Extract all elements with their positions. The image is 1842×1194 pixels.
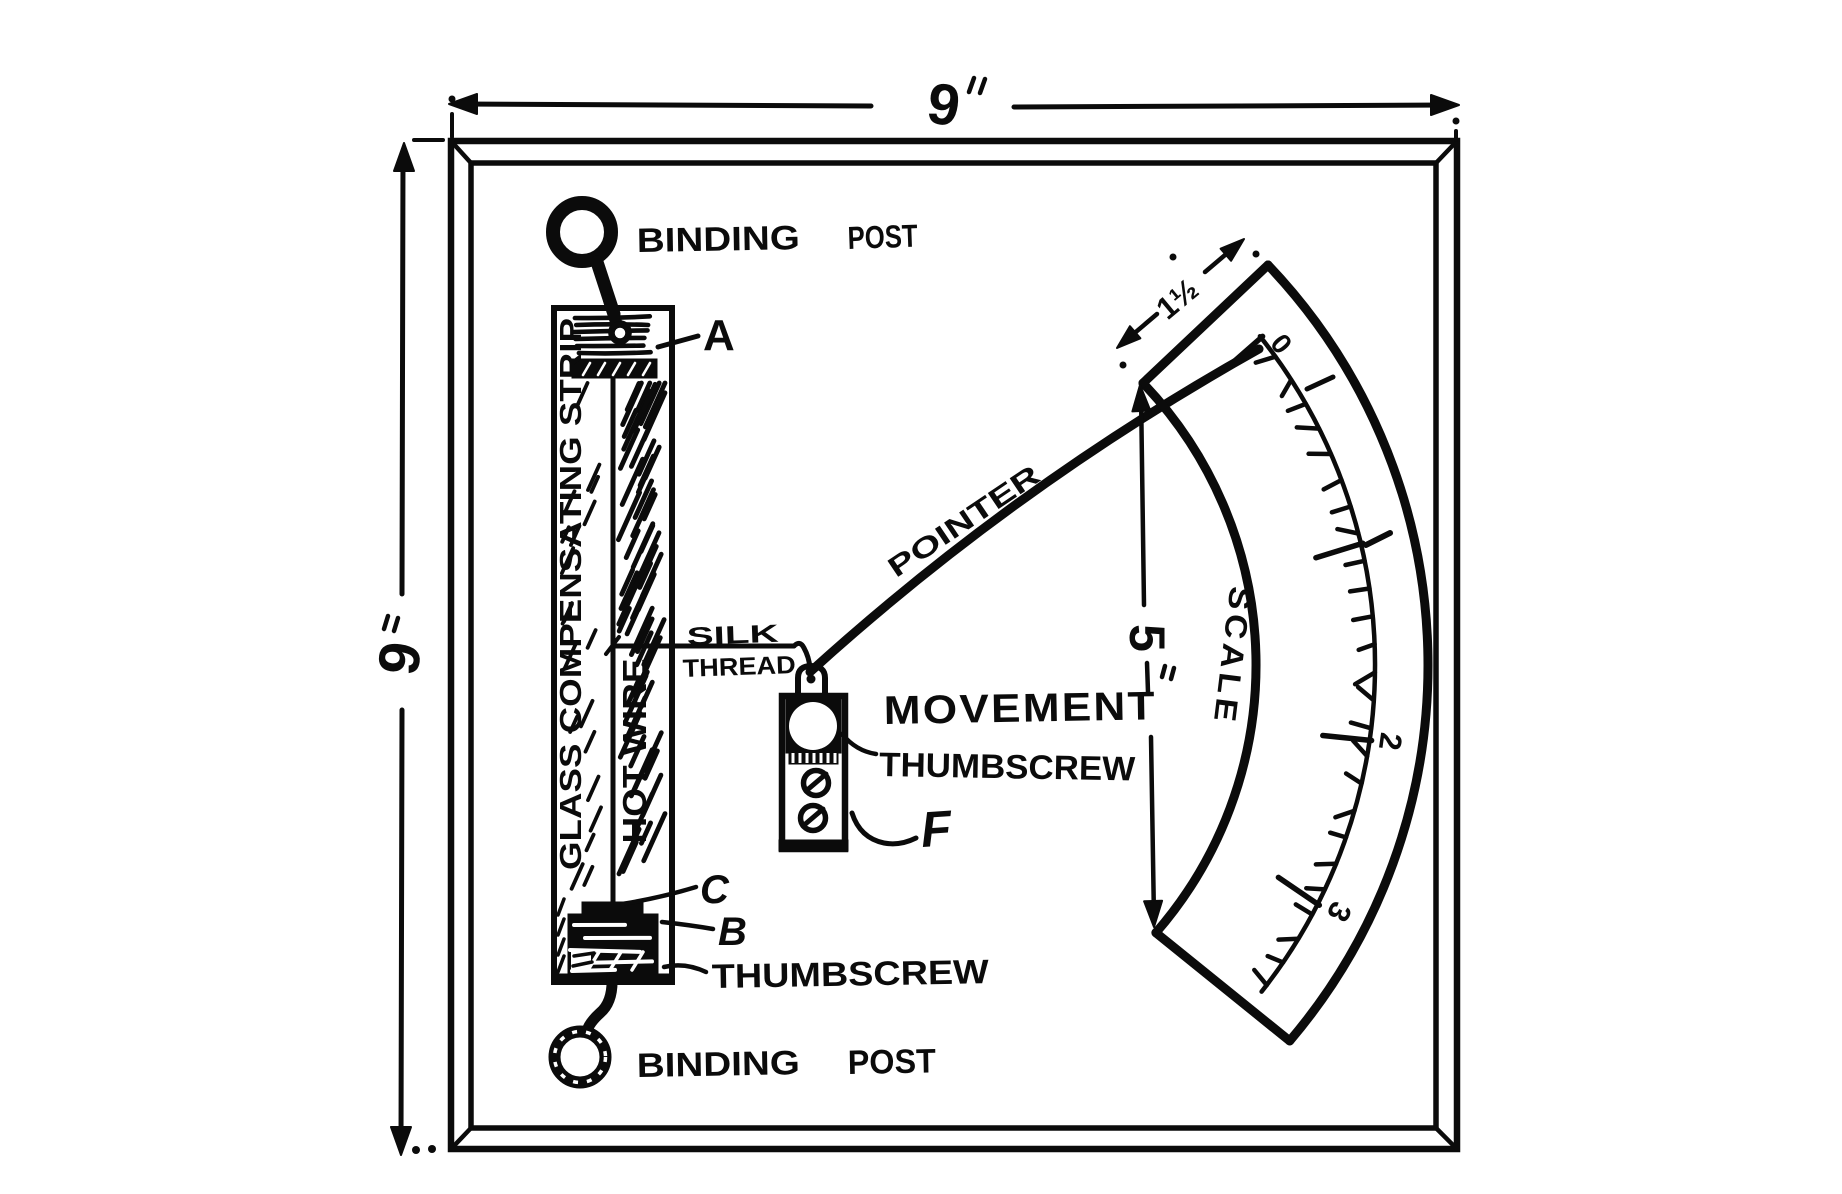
svg-text:C: C bbox=[700, 868, 730, 912]
svg-text:GLASS COMPENSATING STRIP: GLASS COMPENSATING STRIP bbox=[553, 318, 588, 870]
svg-text:POINTER: POINTER bbox=[882, 459, 1045, 583]
svg-text:B: B bbox=[718, 910, 747, 954]
svg-text:HOT WIRE: HOT WIRE bbox=[616, 659, 653, 844]
svg-text:POST: POST bbox=[847, 218, 919, 256]
svg-text:MOVEMENT: MOVEMENT bbox=[883, 684, 1157, 733]
svg-text:5: 5 bbox=[1119, 624, 1175, 652]
svg-text:1½: 1½ bbox=[1149, 272, 1205, 327]
svg-text:SILK: SILK bbox=[686, 620, 779, 651]
svg-text:2: 2 bbox=[1372, 730, 1409, 752]
svg-text:F: F bbox=[919, 800, 955, 858]
svg-text:9: 9 bbox=[366, 638, 435, 679]
svg-text:POST: POST bbox=[847, 1042, 936, 1082]
svg-text:THUMBSCREW: THUMBSCREW bbox=[879, 746, 1137, 788]
svg-text:0: 0 bbox=[1264, 328, 1298, 360]
svg-text:BINDING: BINDING bbox=[636, 1044, 800, 1085]
svg-text:THUMBSCREW: THUMBSCREW bbox=[711, 953, 990, 996]
svg-text:BINDING: BINDING bbox=[636, 219, 800, 260]
svg-text:9: 9 bbox=[923, 71, 964, 140]
svg-text:THREAD: THREAD bbox=[682, 651, 796, 683]
svg-text:3: 3 bbox=[1320, 896, 1359, 927]
svg-text:A: A bbox=[703, 311, 735, 360]
